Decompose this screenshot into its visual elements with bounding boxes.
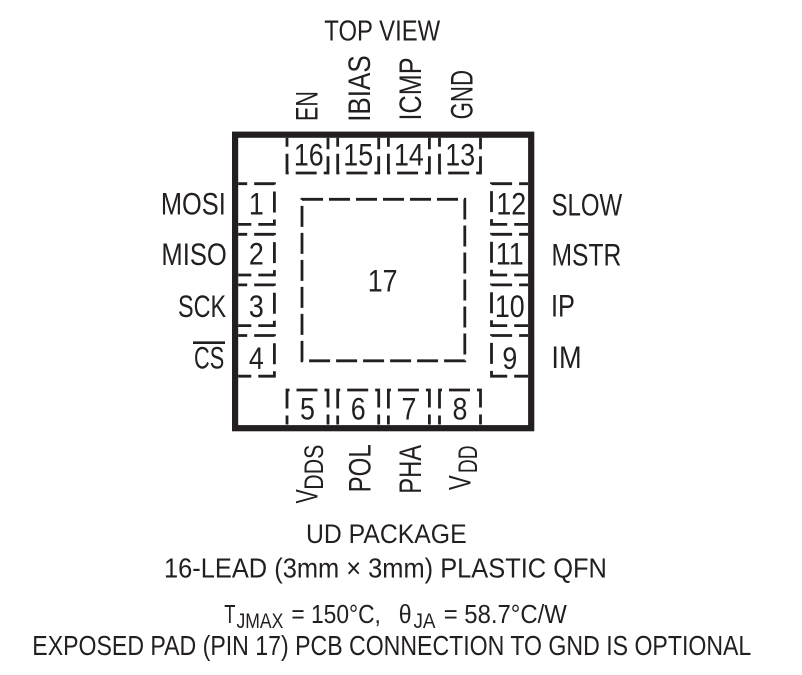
svg-text:POL: POL — [341, 444, 377, 492]
svg-text:UD PACKAGE: UD PACKAGE — [306, 518, 467, 549]
svg-text:ICMP: ICMP — [392, 58, 428, 121]
svg-text:V: V — [289, 489, 325, 503]
svg-text:EXPOSED PAD (PIN 17) PCB CONNE: EXPOSED PAD (PIN 17) PCB CONNECTION TO G… — [32, 630, 751, 661]
svg-text:EN: EN — [289, 91, 325, 121]
svg-text:V: V — [442, 475, 478, 490]
svg-text:9: 9 — [502, 340, 517, 376]
svg-text:16-LEAD (3mm × 3mm) PLASTIC QF: 16-LEAD (3mm × 3mm) PLASTIC QFN — [164, 551, 607, 583]
svg-text:CS: CS — [194, 339, 224, 375]
svg-text:TOP VIEW: TOP VIEW — [324, 16, 441, 48]
svg-text:3: 3 — [249, 288, 264, 324]
svg-text:JMAX: JMAX — [237, 609, 284, 633]
svg-text:T: T — [224, 599, 235, 629]
svg-text:1: 1 — [249, 185, 264, 221]
svg-text:SCK: SCK — [178, 288, 226, 324]
svg-text:13: 13 — [445, 137, 475, 173]
svg-text:6: 6 — [351, 391, 366, 427]
svg-text:4: 4 — [249, 340, 264, 376]
svg-text:GND: GND — [444, 70, 480, 119]
svg-text:SLOW: SLOW — [552, 186, 623, 222]
svg-text:= 150°C,: = 150°C, — [291, 599, 381, 629]
svg-text:DD: DD — [453, 446, 483, 474]
svg-text:14: 14 — [394, 137, 424, 173]
svg-text:IBIAS: IBIAS — [341, 55, 377, 122]
svg-text:JA: JA — [414, 609, 437, 633]
svg-text:DDS: DDS — [299, 445, 329, 490]
svg-text:MOSI: MOSI — [161, 186, 226, 222]
svg-text:MSTR: MSTR — [552, 237, 622, 273]
svg-text:IP: IP — [551, 288, 575, 324]
svg-text:11: 11 — [496, 236, 524, 272]
svg-text:θ: θ — [399, 599, 412, 629]
svg-text:= 58.7°C/W: = 58.7°C/W — [444, 599, 568, 629]
svg-text:PHA: PHA — [392, 445, 428, 494]
svg-text:5: 5 — [300, 391, 315, 427]
svg-text:2: 2 — [249, 236, 264, 272]
svg-text:10: 10 — [495, 288, 525, 324]
svg-text:7: 7 — [401, 391, 416, 427]
svg-text:17: 17 — [368, 262, 398, 298]
svg-text:IM: IM — [551, 339, 581, 375]
svg-text:8: 8 — [452, 391, 467, 427]
svg-text:MISO: MISO — [161, 236, 226, 272]
svg-text:16: 16 — [294, 137, 324, 173]
svg-text:15: 15 — [343, 137, 373, 173]
svg-text:12: 12 — [496, 185, 526, 221]
